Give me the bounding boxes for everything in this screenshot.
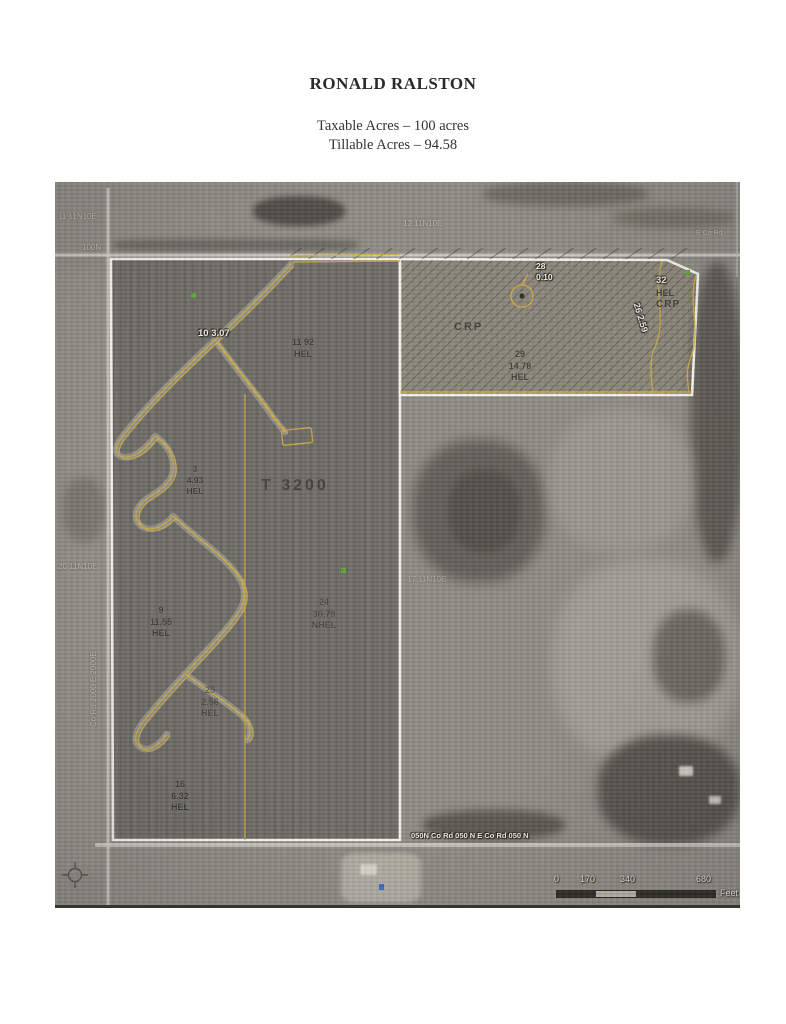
field-label-32: 32 HEL CRP bbox=[656, 269, 700, 311]
road-label-050n: 050N Co Rd 050 N E Co Rd 050 N bbox=[411, 831, 529, 841]
page-title: RONALD RALSTON bbox=[0, 74, 786, 94]
field-label-t3200: T 3200 bbox=[261, 476, 329, 497]
green-marker-1 bbox=[191, 293, 196, 298]
taxable-acres-line: Taxable Acres – 100 acres bbox=[0, 118, 786, 135]
scale-unit: Feet bbox=[720, 888, 738, 898]
blue-marker bbox=[379, 884, 384, 890]
field-label-28: 28 0.10 bbox=[536, 261, 553, 282]
scale-tick-170: 170 bbox=[580, 874, 595, 884]
green-marker-3 bbox=[685, 270, 690, 275]
field-label-16: 16 6.32 HEL bbox=[158, 779, 202, 814]
scanned-document-page: RONALD RALSTON Taxable Acres – 100 acres… bbox=[0, 0, 786, 1024]
section-label-12: 12 11N10E bbox=[403, 219, 442, 229]
field-label-24: 24 30.79 NHEL bbox=[302, 597, 346, 632]
boundary-tick-marks bbox=[290, 248, 688, 259]
section-label-20: 20 11N10E bbox=[58, 562, 97, 572]
road-label-2000e: Co Rd 2000 E 2000E bbox=[89, 651, 99, 727]
field-label-9: 9 11.55 HEL bbox=[139, 605, 183, 640]
road-label-e-co-rd: E Co Rd bbox=[696, 229, 722, 238]
scale-tick-0: 0 bbox=[554, 874, 559, 884]
parcel-west-boundary bbox=[111, 259, 400, 840]
section-label-11: 11 11N10E bbox=[58, 212, 97, 222]
section-corner-icon bbox=[62, 862, 88, 888]
field-label-25: 25 2.56 HEL bbox=[188, 685, 232, 720]
road-label-100n: 100N bbox=[82, 243, 101, 253]
field-label-3: 3 4.93 HEL bbox=[173, 464, 217, 497]
field-label-11: 11 92 HEL bbox=[280, 337, 326, 360]
field-label-29: 29 14.78 HEL bbox=[498, 349, 542, 384]
scale-tick-680: 680 bbox=[696, 874, 711, 884]
scale-bar: 0 170 340 680 Feet bbox=[550, 874, 740, 902]
crp-area-label: CRP bbox=[454, 320, 483, 334]
scale-tick-340: 340 bbox=[620, 874, 635, 884]
green-marker-2 bbox=[341, 568, 346, 573]
scale-segment-1 bbox=[556, 890, 596, 898]
field-label-10: 10 3.07 bbox=[198, 328, 230, 340]
tillable-acres-line: Tillable Acres – 94.58 bbox=[0, 137, 786, 154]
aerial-map: 11 11N10E 12 11N10E 20 11N10E 17 11N10E … bbox=[55, 182, 740, 908]
scale-segment-3 bbox=[636, 890, 716, 898]
section-label-17: 17 11N10E bbox=[407, 575, 446, 585]
scale-segment-2 bbox=[596, 890, 636, 898]
